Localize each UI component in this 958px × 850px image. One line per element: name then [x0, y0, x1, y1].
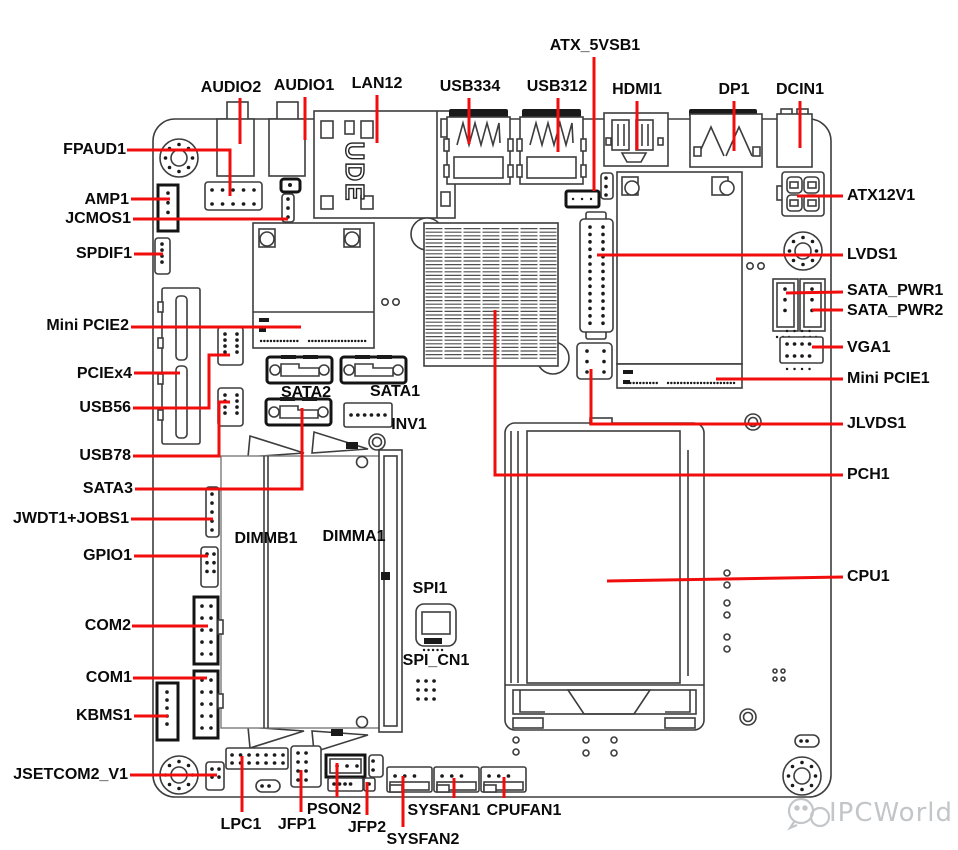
callout-com2: COM2 [11, 616, 131, 635]
sata1-port [341, 355, 406, 383]
pch-heatsink [411, 218, 569, 374]
callout-vga1: VGA1 [847, 338, 891, 357]
callout-spdif1: SPDIF1 [12, 244, 132, 263]
callout-jlvds1: JLVDS1 [847, 414, 906, 433]
jfp1-header [291, 746, 321, 787]
callout-kbms1: KBMS1 [12, 706, 132, 725]
spi-cn1-footprint [418, 681, 442, 699]
wechat-logo-icon [789, 799, 829, 828]
callout-fpaud1: FPAUD1 [6, 140, 126, 159]
lan-connector: UDE [314, 111, 455, 218]
via-dots [513, 570, 785, 756]
callout-jcmos1: JCMOS1 [11, 209, 131, 228]
dp-connector [689, 109, 762, 167]
mounting-hole [783, 757, 821, 795]
vga1-header [780, 331, 823, 369]
watermark-brand: IPCWorld [829, 798, 953, 828]
callout-usb78: USB78 [11, 446, 131, 465]
usb334-connector [444, 109, 513, 184]
callout-sata3: SATA3 [13, 479, 133, 498]
callout-jwdt1-jobs1: JWDT1+JOBS1 [9, 509, 129, 528]
board-drawing: UDE [0, 0, 958, 850]
com1-header [194, 671, 223, 738]
header-2x2 [369, 755, 383, 777]
callout-amp1: AMP1 [9, 190, 129, 209]
callout-atx12v1: ATX12V1 [847, 186, 915, 205]
callout-mini-pcie1: Mini PCIE1 [847, 369, 930, 388]
mounting-hole [784, 232, 822, 270]
motherboard-diagram: UDE [0, 0, 958, 850]
screw-hole [745, 414, 761, 430]
callout-sata-pwr1: SATA_PWR1 [847, 281, 943, 300]
callout-pch1: PCH1 [847, 465, 890, 484]
amp1-header [158, 185, 178, 231]
audio1-jack [269, 102, 305, 176]
mini-pcie1-module [617, 172, 742, 388]
sysfan2-connector [387, 767, 432, 792]
callout-sata-pwr2: SATA_PWR2 [847, 301, 943, 320]
spdif1-header [155, 238, 170, 274]
sata-pwr2-connector [800, 279, 825, 337]
callout-atx-5vsb1: ATX_5VSB1 [525, 36, 665, 55]
screw-hole [740, 709, 756, 725]
label-sata1: SATA1 [325, 382, 465, 401]
sata2-port [267, 355, 332, 383]
callout-pciex4: PCIEx4 [12, 364, 132, 383]
callout-gpio1: GPIO1 [12, 546, 132, 565]
callout-com1: COM1 [12, 668, 132, 687]
sata-pwr1-connector [773, 279, 798, 337]
callout-jsetcom2-v1: JSETCOM2_V1 [8, 765, 128, 784]
usb56-header [218, 327, 243, 365]
jumper-3pin [795, 735, 819, 747]
lan-marking-text: UDE [340, 142, 370, 203]
mini-pcie2-module [253, 223, 374, 348]
jcmos1-header [281, 179, 300, 222]
callout-cpu1: CPU1 [847, 567, 890, 586]
kbms1-header [157, 683, 178, 740]
pson2-connector [326, 755, 365, 777]
com2-header [194, 597, 223, 664]
label-spi1: SPI1 [360, 579, 500, 598]
callout-sysfan2: SYSFAN2 [353, 830, 493, 849]
callout-usb56: USB56 [11, 398, 131, 417]
jumper-3pin [256, 780, 280, 792]
label-spi-cn1: SPI_CN1 [366, 651, 506, 670]
cpu-socket [505, 418, 704, 730]
audio2-jack [217, 102, 254, 176]
label-dimma1: DIMMA1 [284, 527, 424, 546]
callout-lvds1: LVDS1 [847, 245, 897, 264]
atx12v-connector [777, 172, 824, 216]
sysfan1-connector [434, 767, 479, 792]
lpc1-header [226, 748, 288, 769]
gpio1-header [201, 547, 218, 587]
label-inv1: INV1 [339, 415, 479, 434]
callout-cpufan1: CPUFAN1 [454, 801, 594, 820]
callout-mini-pcie2: Mini PCIE2 [9, 316, 129, 335]
usb312-connector [517, 109, 586, 184]
pciex4-slot [158, 288, 200, 444]
dcin-connector [777, 109, 812, 167]
spi1-socket [416, 604, 456, 650]
jlvds1-header [577, 343, 612, 379]
screw-hole [369, 434, 385, 450]
mounting-hole [160, 139, 198, 177]
lvds1-connector [580, 212, 613, 339]
fpaud1-header [205, 182, 262, 210]
callout-dcin1: DCIN1 [730, 80, 870, 99]
